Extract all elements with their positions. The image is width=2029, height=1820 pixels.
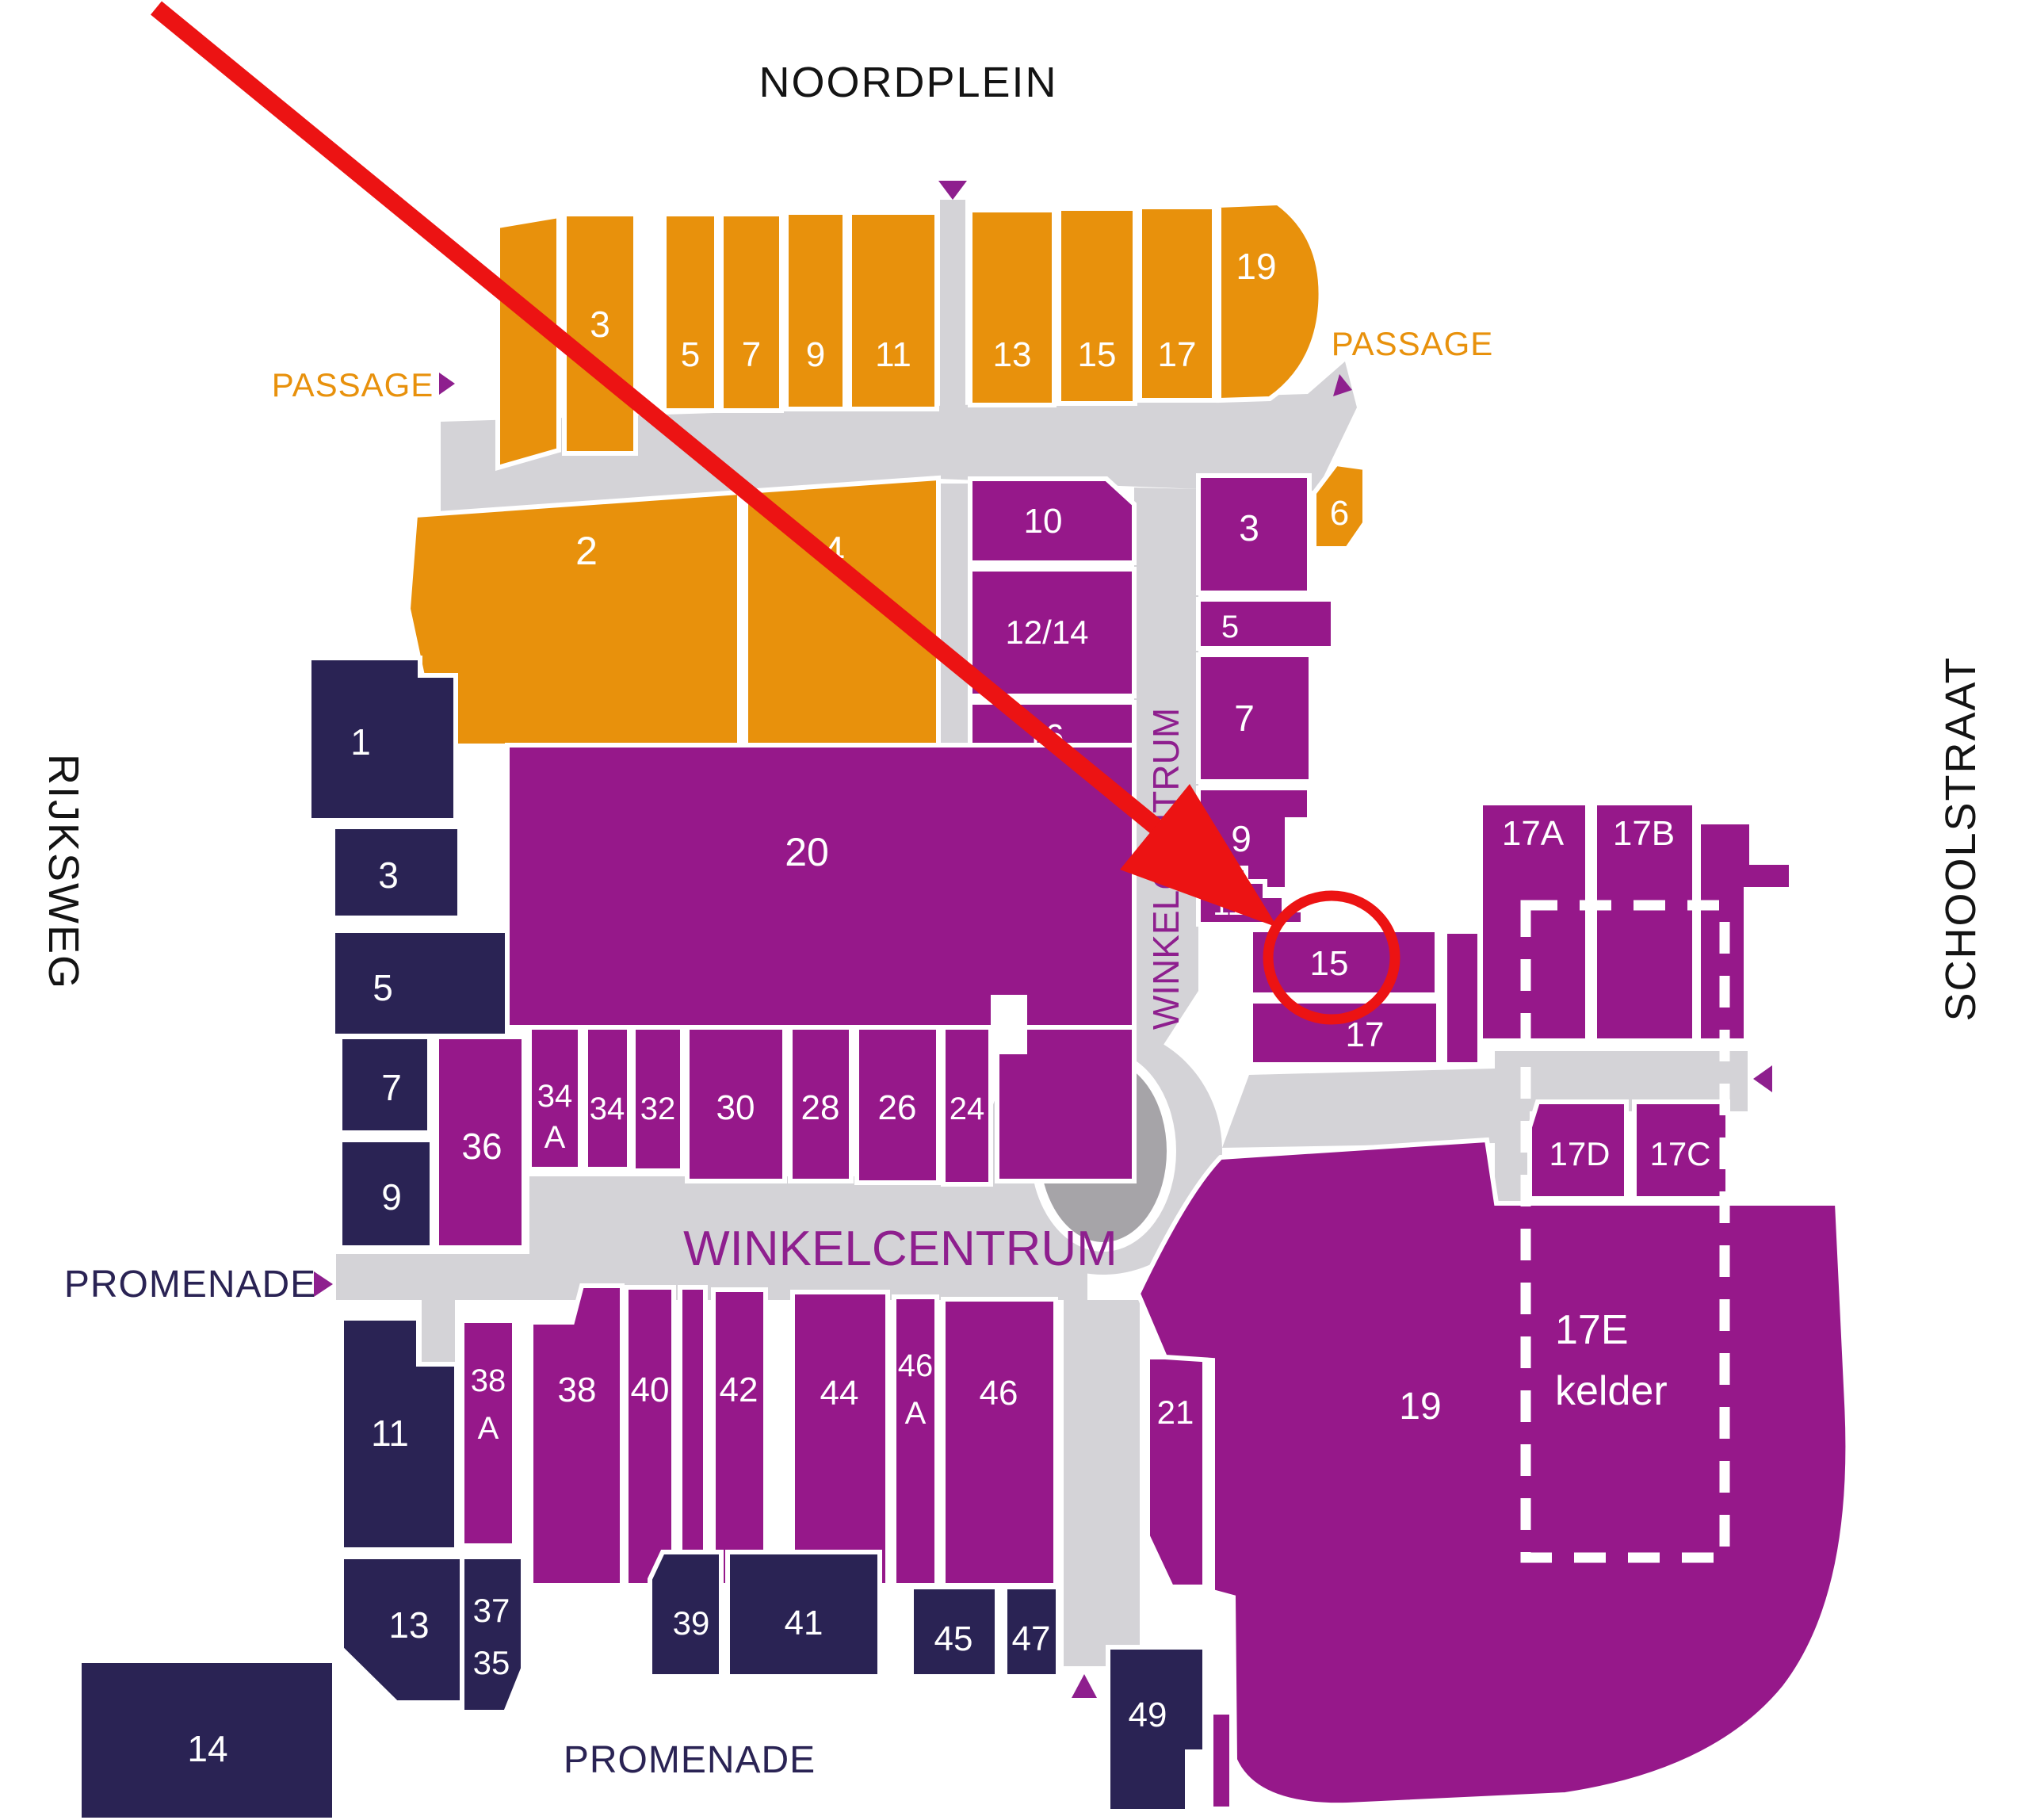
unit-46[interactable] (943, 1299, 1056, 1585)
mall-map: 357911131517192461012/141618357911151720… (0, 0, 2029, 1820)
unit-3-purple[interactable] (1198, 476, 1309, 593)
unit-19-south[interactable] (1138, 1140, 1847, 1805)
unit-26[interactable] (857, 1027, 938, 1183)
street-rijksweg: RIJKSWEG (40, 754, 87, 990)
unit-46a[interactable] (894, 1297, 937, 1585)
unit-5-navy[interactable] (333, 931, 507, 1036)
mall-map-page: 357911131517192461012/141618357911151720… (0, 0, 2029, 1820)
unit-32[interactable] (633, 1027, 682, 1171)
unit-17a[interactable] (1481, 803, 1588, 1041)
unit-1-navy[interactable] (309, 658, 456, 820)
unit-17d[interactable] (1530, 1102, 1626, 1199)
arrow-passage-west (439, 373, 455, 395)
street-promenade-west: PROMENADE (64, 1264, 316, 1306)
unit-20[interactable] (507, 745, 1134, 1027)
unit-3-orange[interactable] (564, 214, 636, 453)
unit-38[interactable] (531, 1286, 622, 1585)
corridor-noordplein-entrance (940, 200, 965, 428)
street-schoolstraat: SCHOOLSTRAAT (1937, 656, 1985, 1021)
unit-sliver-east-of-49[interactable] (1211, 1712, 1232, 1809)
unit-17-purple[interactable] (1251, 1001, 1439, 1065)
unit-12-14[interactable] (970, 569, 1134, 696)
corridor-noordplein-south (940, 484, 968, 748)
unit-15-orange[interactable] (1059, 208, 1135, 403)
street-promenade-south: PROMENADE (564, 1739, 816, 1781)
unit-47[interactable] (1005, 1587, 1058, 1677)
unit-17b[interactable] (1595, 803, 1695, 1041)
unit-7-purple[interactable] (1198, 655, 1311, 782)
unit-17-orange[interactable] (1140, 207, 1214, 400)
unit-38a[interactable] (462, 1321, 514, 1546)
unit-44[interactable] (793, 1292, 888, 1585)
unit-9-navy[interactable] (340, 1140, 432, 1248)
arrow-promenade-west (314, 1271, 333, 1297)
unit-42[interactable] (713, 1290, 766, 1585)
unit-40[interactable] (626, 1287, 674, 1585)
unit-49[interactable] (1108, 1647, 1205, 1811)
unit-5-purple[interactable] (1198, 599, 1333, 648)
arrow-promenade-south-entrance (1072, 1674, 1097, 1698)
unit-37-35[interactable] (462, 1557, 523, 1712)
unit-19-orange[interactable] (1219, 203, 1321, 400)
patch-24-notch (991, 995, 1027, 1054)
unit-30[interactable] (687, 1027, 785, 1181)
corridor-promenade-south (1064, 1300, 1140, 1666)
corridor-main-east-a (1222, 1069, 1495, 1148)
unit-36[interactable] (437, 1037, 524, 1248)
unit-9-orange[interactable] (786, 212, 845, 409)
arrow-schoolstraat-entrance (1753, 1065, 1772, 1092)
unit-41[interactable] (728, 1552, 880, 1677)
arrow-noordplein-entrance (938, 181, 967, 200)
unit-39[interactable] (650, 1552, 721, 1677)
unit-21[interactable] (1148, 1357, 1205, 1587)
unit-34[interactable] (586, 1027, 629, 1169)
unit-14[interactable] (79, 1661, 334, 1820)
unit-3-navy[interactable] (333, 827, 460, 918)
unit-5-orange[interactable] (664, 214, 716, 411)
unit-east-of-15[interactable] (1445, 931, 1480, 1065)
street-winkelcentrum-horizontal: WINKELCENTRUM (683, 1222, 1118, 1276)
unit-13-orange[interactable] (970, 210, 1054, 405)
street-passage-east: PASSAGE (1332, 325, 1494, 362)
unit-28[interactable] (790, 1027, 851, 1181)
unit-ne-of-17b[interactable] (1698, 822, 1791, 1041)
street-noordplein: NOORDPLEIN (758, 59, 1057, 106)
unit-11-orange[interactable] (850, 212, 937, 409)
street-passage-west: PASSAGE (272, 366, 434, 403)
unit-24[interactable] (943, 1027, 991, 1184)
unit-10[interactable] (970, 479, 1134, 563)
unit-7-navy[interactable] (340, 1037, 430, 1133)
unit-7-orange[interactable] (721, 214, 781, 411)
unit-sliver-40-42[interactable] (680, 1287, 705, 1585)
unit-17c[interactable] (1634, 1102, 1728, 1199)
unit-34a[interactable] (529, 1027, 580, 1169)
unit-1-orange[interactable] (498, 216, 559, 468)
unit-45[interactable] (911, 1587, 997, 1677)
